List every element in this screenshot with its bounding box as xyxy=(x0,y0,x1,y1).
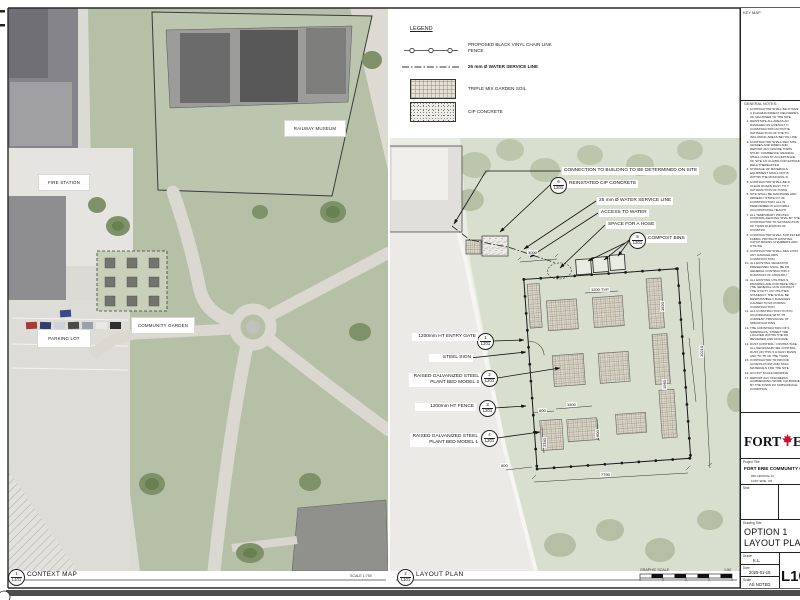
callout-plant-bed-model-1: RAISED GALVANIZED STEEL PLANT BED MODEL … xyxy=(410,433,480,447)
general-note: DUST CONTROL: CONTRA TAKE ALL NECESSARY … xyxy=(750,343,800,358)
general-note: CONTRACTOR SHALL BE R CLEAN ROADS DAILY … xyxy=(750,181,800,192)
view-title-layout-plan: LAYOUT PLAN xyxy=(416,571,464,578)
scale-value: AS NOTED xyxy=(749,582,770,587)
chain-link-fence-line-icon xyxy=(404,47,458,54)
project-address: ### CENTRAL AV xyxy=(751,474,774,478)
general-note: ALL TEMPORARY PROTEC CONTROL FENCING SHA… xyxy=(750,214,800,233)
context-map-art xyxy=(8,8,388,571)
callout-steel-sign: STEEL SIGN xyxy=(429,354,473,362)
dim-right-lower: 1560 xyxy=(662,379,667,390)
fields-divider xyxy=(779,552,780,588)
dim-bed-typ: 1200 TYP xyxy=(590,287,610,292)
date-value: 2025-01-15 xyxy=(749,570,770,575)
callout-plant-bed-model-2: RAISED GALVANIZED STEEL PLANT BED MODEL … xyxy=(409,373,481,387)
map-label-fire-station: FIRE STATION xyxy=(38,174,90,191)
logo-word-erie: ERIE xyxy=(793,434,800,450)
sheet-artwork xyxy=(0,0,800,600)
project-title-label: Project Title xyxy=(743,460,760,464)
maple-leaf-icon xyxy=(782,434,793,446)
dim-right-upper: 1620 xyxy=(660,301,665,312)
graphic-scale-label: GRAPHIC SCALE xyxy=(640,568,669,572)
fort-erie-logo: FORT ERIE xyxy=(744,434,800,450)
map-label-community-garden: COMMUNITY GARDEN xyxy=(131,317,195,334)
callout-entry-gate: 1200mm HT ENTRY GATE xyxy=(412,333,478,341)
triple-mix-soil-swatch xyxy=(410,79,456,99)
view-sheet-ref: L101 xyxy=(400,577,411,583)
map-label-parking-lot: PARKING LOT xyxy=(37,329,91,348)
general-note: SITE SHALL BE MAINTAINE AND ORDERLY STAT… xyxy=(750,193,800,212)
general-note: CONTRACTOR TO PROVID ACCESS POINT AND ST… xyxy=(750,359,800,370)
detail-callout-3: 3 L201 xyxy=(479,400,496,417)
detail-callout-2: 2 L201 xyxy=(481,370,498,387)
dim-gap: 800 xyxy=(538,408,547,413)
water-service-line-icon xyxy=(402,65,460,69)
general-note: THE CONSTRUCTION OF S SIDEWALKS, STREET … xyxy=(750,327,800,342)
callout-space-for-hose: SPACE FOR A HOSE xyxy=(606,221,656,229)
drawn-value: K.L. xyxy=(753,558,760,563)
seal-divider xyxy=(778,484,779,519)
graphic-scale-ratio: 1:50 xyxy=(724,568,731,572)
callout-compost-bins: COMPOST BINS xyxy=(646,235,687,243)
callout-sheet-ref: L201 xyxy=(484,438,495,444)
detail-callout-1: 1 L201 xyxy=(477,333,494,350)
callout-sheet-ref: L201 xyxy=(480,341,491,347)
general-note: CONTRACTOR SHALL RES COST ANY DAMAGE ARI… xyxy=(750,250,800,261)
general-note: STORAGE OF MATERIALS EQUIPMENT SHALL NOT… xyxy=(750,168,800,179)
legend-item-water: 25 mm Ø WATER SERVICE LINE xyxy=(468,64,558,70)
general-notes-title: GENERAL NOTES: xyxy=(744,102,777,106)
view-marker-context-map: 1 L101 xyxy=(8,569,25,586)
drawing-title-line1: OPTION 1 xyxy=(744,527,788,537)
key-map-label: KEY MAP xyxy=(743,10,761,15)
view-marker-layout-plan: 2 L101 xyxy=(397,569,414,586)
general-note: CONTRACTOR SHALL SUP FILTER FABRIC PROTE… xyxy=(750,234,800,249)
logo-word-fort: FORT xyxy=(744,434,781,450)
callout-sheet-ref: L201 xyxy=(553,185,564,191)
detail-callout-4: 4 L201 xyxy=(481,430,498,447)
dim-right-outer: 10210 xyxy=(699,345,704,358)
dim-top: 3000 xyxy=(527,250,538,255)
view-title-context-map: CONTEXT MAP xyxy=(27,571,77,578)
seal-label: Seal xyxy=(743,486,749,490)
general-note: CONTRACTOR SHALL REV SITE GRADES AND DIM… xyxy=(750,141,800,168)
dim-bed-length: 1500 xyxy=(566,402,577,407)
detail-callout-6: 6 L201 xyxy=(550,177,567,194)
project-city: FORT ERIE, ON xyxy=(751,479,772,483)
dim-bottom-left: 800 xyxy=(500,463,509,468)
drawing-title-label: Drawing Title xyxy=(743,521,761,525)
drawing-sheet: FIRE STATION RAILWAY MUSEUM COMMUNITY GA… xyxy=(0,0,800,600)
callout-sheet-ref: L201 xyxy=(632,240,643,246)
legend-item-fence: PROPOSED BLACK VINYL CHAIN LINK FENCE xyxy=(468,42,558,53)
title-block: KEY MAP GENERAL NOTES: CONTRACTOR SHALL … xyxy=(740,8,800,588)
general-note: ALL EXISTING UTILITIES S DRAWING ARE FOR… xyxy=(750,279,800,310)
callout-sheet-ref: L201 xyxy=(482,408,493,414)
callout-connection-to-building: CONNECTION TO BUILDING TO BE DETERMINED … xyxy=(562,167,699,175)
dim-left-lower: 2340 xyxy=(542,437,547,448)
project-title: FORT ERIE COMMUNITY GARDEN xyxy=(744,466,800,471)
callout-access-to-water: ACCESS TO WATER xyxy=(599,209,649,217)
general-note: CONTRACTOR SHALL BE R HAVE A FLAGMAN DIR… xyxy=(750,108,800,119)
drawn-label: Drawn xyxy=(743,554,752,558)
dim-bottom-total: 7790 xyxy=(600,472,611,477)
drawing-title-line2: LAYOUT PLAN xyxy=(744,538,800,548)
general-note: REPORT ANY DISCREPAN COMMENCING WORK. NO… xyxy=(750,377,800,392)
callout-water-service-line: 25 mm Ø WATER SERVICE LINE xyxy=(597,197,673,205)
map-label-railway-museum: RAILWAY MUSEUM xyxy=(284,120,346,137)
callout-fence: 1200mm HT FENCE xyxy=(415,403,476,411)
legend-item-concrete: CIP CONCRETE xyxy=(468,109,558,115)
view-sheet-ref: L101 xyxy=(11,577,22,583)
general-notes-list: CONTRACTOR SHALL BE R HAVE A FLAGMAN DIR… xyxy=(744,108,800,393)
general-note: REINSTATE ALL AREAS AN DAMAGED AS A RESU… xyxy=(750,120,800,139)
general-note: ALL EXISTING VEGETATIO PRESERVED SHALL B… xyxy=(750,262,800,277)
sheet-number: L101 xyxy=(781,568,800,585)
callout-sheet-ref: L201 xyxy=(484,378,495,384)
legend-item-soil: TRIPLE MIX GARDEN SOIL xyxy=(468,86,558,92)
view-scale-context-map: SCALE 1:750 xyxy=(350,574,372,578)
general-note: ALL CONSTRUCTION TO B IN ACCORDANCE WITH… xyxy=(750,310,800,325)
dim-path: 600 xyxy=(595,429,600,438)
detail-callout-5: 5 L201 xyxy=(629,232,646,249)
legend-title: LEGEND xyxy=(410,26,433,32)
cip-concrete-swatch xyxy=(410,102,456,122)
callout-reinstated-concrete: REINSTATED CIP CONCRETE xyxy=(567,180,638,188)
